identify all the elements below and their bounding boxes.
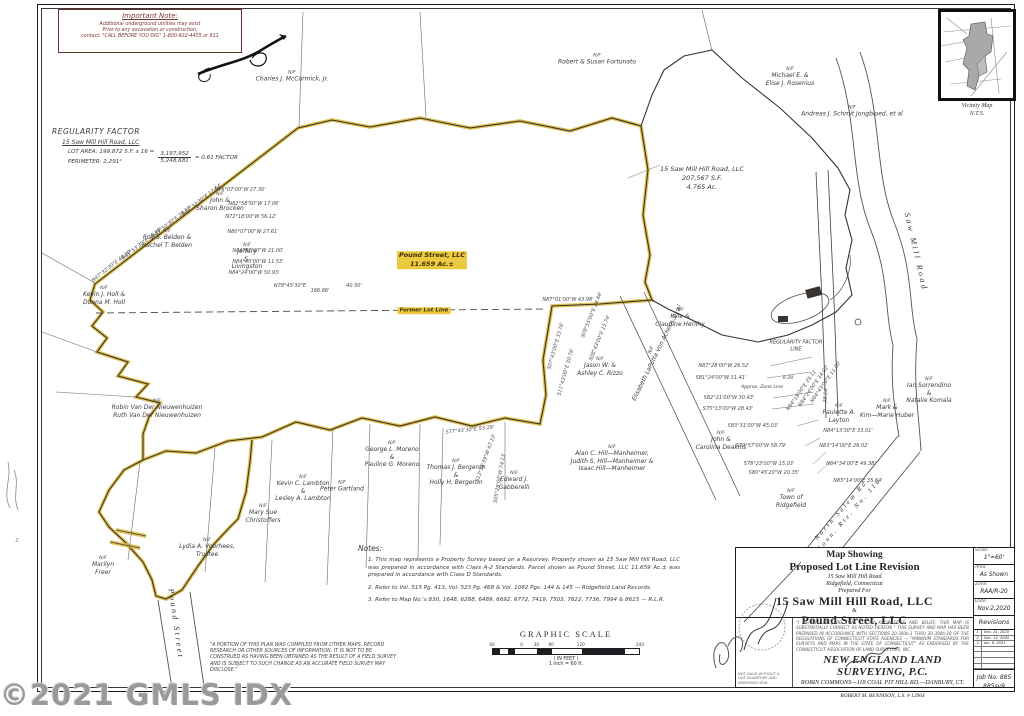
vicinity-map bbox=[938, 9, 1016, 101]
scale-tick-label: 60 bbox=[549, 642, 554, 647]
notes-title: Notes: bbox=[358, 544, 680, 553]
regularity-factor-fraction: 3,197,952 5,248,681 bbox=[158, 151, 190, 164]
area-label-line: 207,567 S.F. bbox=[660, 174, 744, 183]
owner-name-line: Mary Sue bbox=[246, 509, 281, 517]
important-note-line: contact: "CALL BEFORE YOU DIG" 1-800-922… bbox=[59, 34, 241, 40]
owner-name-line: Elise J. Rosenius bbox=[766, 80, 815, 88]
parcel-owner-label: N/FKevin C. Lambton&Lesley A. Lambton bbox=[275, 475, 331, 503]
owner-name-line: & bbox=[906, 390, 951, 398]
bearing-distance-label: 40.50' bbox=[346, 283, 362, 289]
owner-name-line: Ian Sorrendino bbox=[906, 382, 951, 390]
bearing-distance-label: S75°13'00"W 28.43' bbox=[703, 406, 754, 412]
bearing-distance-label: S81°24'00"W 31.41' bbox=[696, 375, 747, 381]
bearing-distance-label: N84°43'00"W 11.53' bbox=[232, 259, 283, 265]
owner-name-line: Alan C. Hill—Manheimer, bbox=[571, 450, 654, 458]
bearing-distance-label: N84°34'00"E 49.38' bbox=[826, 461, 875, 467]
area-label-line: LINE bbox=[770, 346, 823, 353]
owner-name-line: Michael E. & bbox=[766, 72, 815, 80]
parcel-owner-label: N/FGeorge L. Moreno&Pauline G. Moreno bbox=[365, 441, 420, 469]
owner-name-line: Kim—Marie Huber bbox=[860, 412, 914, 420]
title-block: Map Showing Proposed Lot Line Revision 1… bbox=[735, 547, 1015, 688]
owner-name-line: Robert & Susan Fortunato bbox=[558, 59, 636, 67]
bearing-distance-label: N82°58'50"W 17.06' bbox=[228, 201, 279, 207]
scale-tick-label: 240 bbox=[636, 642, 644, 647]
parcel-owner-label: N/FIan Sorrendino&Natalie Komala bbox=[906, 377, 951, 405]
regularity-factor-title: REGULARITY FACTOR bbox=[52, 127, 238, 136]
owner-name-line: Marilyn bbox=[92, 561, 114, 569]
site-address-line1: 15 Saw Mill Hill Road bbox=[736, 574, 973, 581]
bearing-distance-label: S80°45'20"W 20.35' bbox=[749, 470, 800, 476]
bearing-distance-label: 25.14' bbox=[822, 387, 829, 403]
surveyor-stamp-cell: NOT VALID WITHOUT A LIVE SIGNATURE AND E… bbox=[736, 618, 793, 687]
surveyor-name: ROBERT M. BENNISON, L.S. # 12964 bbox=[796, 693, 969, 699]
owner-name-line: Paulette A. bbox=[823, 409, 856, 417]
meta-cells: Scale:1"=60'Area:As ShownZone:RAA/R-20Da… bbox=[974, 548, 1014, 616]
vicinity-subject-parcel bbox=[963, 22, 993, 90]
notes-block: Notes: 1. This map represents a Property… bbox=[358, 544, 680, 610]
parcel-owner-label: N/FMary SueChristoffers bbox=[246, 504, 281, 524]
scale-inch-label: 1 inch = 60 ft. bbox=[486, 662, 646, 667]
bearing-distance-label: N78°45'30"E bbox=[274, 283, 306, 289]
vicinity-caption-line2: N.T.S. bbox=[936, 111, 1018, 119]
scale-tick-label: 0 bbox=[520, 642, 523, 647]
parcel-area-label: REGULARITY FACTORLINE bbox=[770, 339, 823, 353]
area-label-line: Former Lot Line bbox=[398, 307, 451, 314]
parcel-owner-label: N/FRobin Van Der NieuwenhuizenRuth Van D… bbox=[112, 399, 203, 419]
map-title-line2: Proposed Lot Line Revision bbox=[736, 561, 973, 574]
street-name-label: Saw Mill Road bbox=[902, 212, 931, 293]
parcel-owner-label: N/FMarilynFreer bbox=[92, 556, 114, 576]
important-note-title: Important Note: bbox=[59, 12, 241, 20]
revision-row bbox=[974, 664, 1014, 670]
owner-name-line: Jason W. & bbox=[577, 362, 623, 370]
bearing-distance-label: S79°57'00"W 58.79' bbox=[736, 443, 787, 449]
owner-name-line: Rachel T. Belden bbox=[142, 242, 192, 250]
area-label-line: R-20 bbox=[783, 376, 794, 382]
notes-list: 1. This map represents a Property Survey… bbox=[358, 557, 680, 605]
street-name-line: Pound Street bbox=[166, 588, 187, 660]
margin-mark: 2 bbox=[15, 538, 18, 544]
title-block-bottom: NOT VALID WITHOUT A LIVE SIGNATURE AND E… bbox=[736, 618, 973, 687]
street-name-label: Pound Street bbox=[166, 588, 187, 660]
owner-name-line: Judith S. Hill—Manheimer & bbox=[571, 458, 654, 466]
owner-name-line: Kevin C. Lambton bbox=[275, 480, 331, 488]
scale-tick-label: 120 bbox=[577, 642, 585, 647]
owner-name-line: Town of bbox=[776, 494, 806, 502]
vicinity-caption-line1: Vicinity Map bbox=[936, 103, 1018, 111]
fraction-denominator: 5,248,681 bbox=[158, 158, 190, 164]
parcel-area-label: R-20 bbox=[783, 376, 794, 382]
scale-tick-label: 30 bbox=[534, 642, 539, 647]
parcel-area-label: Former Lot Line bbox=[398, 307, 451, 314]
note-item: 2. Refer to Vol. 515 Pg. 413, Vol. 523 P… bbox=[368, 585, 680, 593]
scale-bar bbox=[492, 648, 640, 655]
job-number-cell: Job No. 885 885sv9 bbox=[974, 670, 1014, 691]
parcel-owner-label: N/FCharles J. McCormick, Jr. bbox=[256, 71, 329, 84]
owner-name-line: Pauline G. Moreno bbox=[365, 461, 420, 469]
bearing-distance-label: S07°43'00"E 33.76' bbox=[546, 322, 565, 371]
bearing-distance-label: S13°38'39"W 47.10' bbox=[475, 433, 498, 483]
regularity-factor-result: = 0.61 FACTOR bbox=[195, 155, 238, 161]
title-block-main: Map Showing Proposed Lot Line Revision 1… bbox=[736, 548, 974, 687]
owner-name-line: Kevin J. Holl & bbox=[83, 291, 125, 299]
graphic-scale: GRAPHIC SCALE 6003060120240 ( IN FEET ) … bbox=[486, 629, 646, 667]
parcel-area-label: 15 Saw Mill Hill Road, LLC207,567 S.F.4.… bbox=[660, 165, 744, 191]
owner-name-line: Trustee bbox=[179, 551, 235, 559]
owner-name-line: Charles J. McCormick, Jr. bbox=[256, 76, 329, 84]
vicinity-map-drawing bbox=[941, 12, 1013, 98]
bearing-distance-label: N84°24'00"W 50.93' bbox=[228, 270, 279, 276]
certification-text: "I HEREBY DECLARE THAT TO MY KNOWLEDGE A… bbox=[796, 620, 969, 652]
bearing-distance-label: N84°47'00"W 21.00' bbox=[232, 248, 283, 254]
bearing-distance-label: N76°07'00"W 27.30' bbox=[214, 187, 265, 193]
nf-label: N/F bbox=[626, 302, 677, 399]
scale-tick-labels: 6003060120240 bbox=[492, 642, 640, 648]
perimeter-line: PERIMETER: 2,291² bbox=[68, 158, 154, 168]
note-item: 1. This map represents a Property Survey… bbox=[368, 557, 680, 580]
note-item: 3. Refer to Map No.'s 830, 1648, 6288, 6… bbox=[368, 597, 680, 605]
owner-name-line: Lesley A. Lambton bbox=[275, 495, 331, 503]
owner-name-line: Robin Van Der Nieuwenhuizen bbox=[112, 404, 203, 412]
owner-name-line: Thomas J. Bergeron bbox=[427, 464, 486, 472]
vicinity-map-caption: Vicinity Map N.T.S. bbox=[936, 103, 1018, 118]
owner-name-line: Isaac Hill—Manheimer bbox=[571, 465, 654, 473]
area-label-line: REGULARITY FACTOR bbox=[770, 339, 823, 346]
owner-name-line: Gabberelli bbox=[499, 484, 530, 492]
title-block-meta-column: Scale:1"=60'Area:As ShownZone:RAA/R-20Da… bbox=[974, 548, 1014, 687]
parcel-owner-label: N/FTown ofRidgefield bbox=[776, 489, 806, 509]
important-note-box: Important Note: Additional underground u… bbox=[58, 9, 242, 53]
street-name-line: Conn. Rte. No. 116 bbox=[815, 476, 884, 553]
parcel-owner-label: N/FAndreas J. Schmit Jongbloed, et al bbox=[801, 106, 903, 119]
parcel-area-label: Pound Street, LLC11.659 Ac.± bbox=[397, 251, 467, 269]
owner-name-line: Ruth Van Der Nieuwenhuizen bbox=[112, 412, 203, 420]
drawing-number: 885sv9 bbox=[974, 682, 1014, 691]
area-label-line: Approx. Zone Line bbox=[741, 385, 783, 391]
watermark-text: ©2021 GMLS IDX bbox=[0, 678, 293, 712]
regularity-factor-owner: 15 Saw Mill Hill Road, LLC bbox=[62, 139, 238, 146]
bearing-distance-label: S82°21'00"W 30.43' bbox=[704, 395, 755, 401]
owner-name-line: Natalie Komala bbox=[906, 397, 951, 405]
bearing-distance-label: N80°07'00"W 27.61' bbox=[227, 229, 278, 235]
titleblock-meta-cell: Scale:1"=60' bbox=[974, 548, 1014, 565]
bearing-distance-label: 166.86' bbox=[311, 288, 330, 294]
regularity-factor-left: LOT AREA: 199,872 S.F. x 16 = PERIMETER:… bbox=[68, 148, 154, 167]
regularity-factor-block: REGULARITY FACTOR 15 Saw Mill Hill Road,… bbox=[52, 127, 238, 167]
certification-cell: "I HEREBY DECLARE THAT TO MY KNOWLEDGE A… bbox=[792, 618, 973, 687]
job-number: Job No. 885 bbox=[974, 673, 1014, 682]
title-block-title-area: Map Showing Proposed Lot Line Revision 1… bbox=[736, 548, 973, 618]
compiled-disclaimer: "A PORTION OF THIS PLAN WAS COMPILED FRO… bbox=[210, 643, 400, 674]
bearing-distance-label: S78°23'00"W 15.03' bbox=[744, 461, 795, 467]
bearing-distance-label: S83°31'00"W 45.03' bbox=[728, 423, 779, 429]
parcel-owner-label: N/FAlan C. Hill—Manheimer,Judith S. Hill… bbox=[571, 445, 654, 473]
area-label-line: 4.765 Ac. bbox=[660, 182, 744, 191]
scale-tick-label: 60 bbox=[489, 642, 494, 647]
owner-name-line: Ashley C. Rizzo bbox=[577, 370, 623, 378]
bearing-distance-label: N72°18'00"W 56.12' bbox=[225, 214, 276, 220]
graphic-scale-title: GRAPHIC SCALE bbox=[486, 629, 646, 639]
bearing-distance-label: N84°13'30"E 33.01' bbox=[823, 428, 872, 434]
titleblock-meta-cell: Area:As Shown bbox=[974, 565, 1014, 582]
parcel-owner-label: N/FPaulette A.Layton bbox=[823, 404, 856, 424]
bearing-distance-label: N83°14'00"E 26.02' bbox=[819, 443, 868, 449]
firm-name: NEW ENGLAND LAND SURVEYING, P.C. bbox=[796, 654, 969, 678]
stamp-note-text: NOT VALID WITHOUT A LIVE SIGNATURE AND E… bbox=[738, 672, 788, 685]
owner-name-line: & bbox=[365, 454, 420, 462]
owner-name-line: Donna M. Holl bbox=[83, 299, 125, 307]
lot-area-line: LOT AREA: 199,872 S.F. x 16 = bbox=[68, 148, 154, 158]
owner-name-line: Edward J. bbox=[499, 476, 530, 484]
parcel-owner-label: N/FRobert & Susan Fortunato bbox=[558, 54, 636, 67]
street-name-line: Saw Mill Road bbox=[902, 212, 931, 293]
firm-address: ROBIN COMMONS—118 COAL PIT HILL RD.—DANB… bbox=[796, 679, 969, 686]
parcel-owner-label: N/FJason W. &Ashley C. Rizzo bbox=[577, 357, 623, 377]
owner-name-line: Ridgefield bbox=[776, 502, 806, 510]
parcel-owner-label: N/FKevin J. Holl &Donna M. Holl bbox=[83, 286, 125, 306]
owner-name-line: George L. Moreno bbox=[365, 446, 420, 454]
revisions-table: 1Nov. 24, 20202Dec. 14, 20203Jan. 8, 202… bbox=[974, 630, 1014, 670]
bearing-distance-label: N87°01'00"W 43.98' bbox=[542, 297, 593, 303]
important-note-body: Additional underground utilities may exi… bbox=[59, 22, 241, 41]
titleblock-meta-cell: Zone:RAA/R-20 bbox=[974, 582, 1014, 599]
owner-name-line: Freer bbox=[92, 569, 114, 577]
owner-name-line: Mark & bbox=[860, 404, 914, 412]
owner-name-line: Christoffers bbox=[246, 517, 281, 525]
area-label-line: Pound Street, LLC bbox=[397, 251, 467, 260]
bearing-distance-label: N87°28'00"W 26.52' bbox=[698, 363, 749, 369]
owner-name-line: & bbox=[275, 488, 331, 496]
owner-name-line: Lydia A. Voorhees, bbox=[179, 543, 235, 551]
client-name-1: 15 Saw Mill Hill Road, LLC bbox=[736, 595, 973, 608]
parcel-owner-label: N/FMichael E. &Elise J. Rosenius bbox=[766, 67, 815, 87]
parcel-owner-label: N/FLydia A. Voorhees,Trustee bbox=[179, 538, 235, 558]
map-title-line1: Map Showing bbox=[736, 550, 973, 561]
titleblock-meta-cell: Date:Nov.2,2020 bbox=[974, 599, 1014, 616]
survey-map-sheet: N/FCharles J. McCormick, Jr.N/FRobert & … bbox=[0, 0, 1024, 716]
owner-name-line: Layton bbox=[823, 417, 856, 425]
revisions-header: Revisions bbox=[974, 616, 1014, 630]
owner-name-line: Andreas J. Schmit Jongbloed, et al bbox=[801, 111, 903, 119]
bearing-distance-label: S77°43'30"E 53.29' bbox=[445, 424, 494, 435]
site-address-line2: Ridgefield, Connecticut bbox=[736, 581, 973, 588]
area-label-line: 11.659 Ac.± bbox=[397, 260, 467, 269]
parcel-area-label: Approx. Zone Line bbox=[741, 385, 783, 391]
bearing-distance-label: S11°43'00"E 30.76' bbox=[556, 348, 575, 397]
fraction-numerator: 3,197,952 bbox=[158, 151, 190, 158]
area-label-line: 15 Saw Mill Hill Road, LLC bbox=[660, 165, 744, 174]
